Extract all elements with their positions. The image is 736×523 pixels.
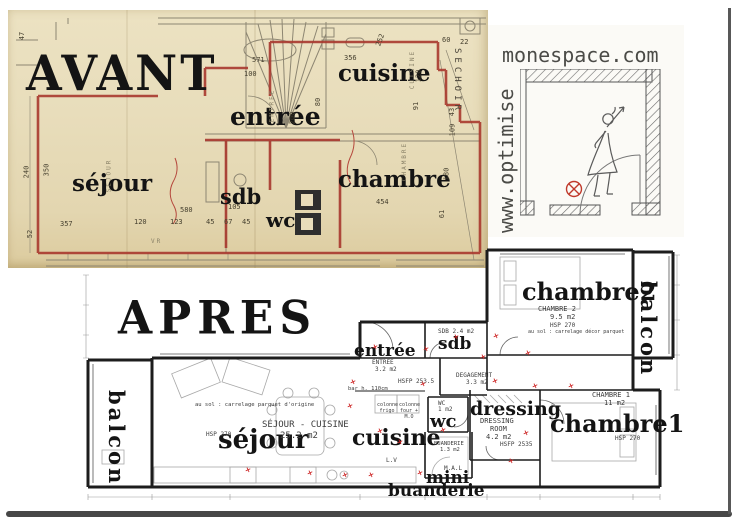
- old-room-entree: entrée: [230, 102, 321, 131]
- chambre1-area: 11 m2: [604, 399, 625, 407]
- new-room-balcon-left: balcon: [104, 390, 129, 486]
- image-right-shadow: [728, 8, 731, 514]
- logo-vertical-text: www.optimise: [494, 89, 518, 234]
- before-after-floorplan-image: AVANT entrée cuisine séjour sdb wc chamb…: [0, 0, 736, 523]
- old-room-sdb: sdb: [220, 184, 261, 209]
- hsfp-degagement: HSFP 253.5: [398, 378, 434, 385]
- sejour-cuisine-caption: SÉJOUR - CUISINE: [262, 420, 349, 430]
- chambre2-area: 9.5 m2: [550, 313, 575, 321]
- old-room-wc: wc: [266, 208, 295, 232]
- girl-silhouette-icon: [588, 107, 624, 196]
- degagement-area: 3.3 m2: [466, 379, 488, 386]
- wc-fixtures: [295, 190, 321, 235]
- logo-domain-text: monespace.com: [502, 43, 659, 67]
- logo-room-figure: [520, 69, 664, 229]
- degagement-caption: DEGAGEMENT: [456, 372, 492, 379]
- chambre1-hsp: HSP 270: [615, 435, 640, 442]
- old-room-sejour: séjour: [72, 170, 152, 197]
- chambre2-floor-note: au sol : carrelage décor parquet: [528, 329, 624, 335]
- chambre1-caption: CHAMBRE 1: [592, 391, 630, 399]
- avant-plan: AVANT entrée cuisine séjour sdb wc chamb…: [8, 10, 488, 268]
- logo-block: monespace.com www.optimise: [488, 25, 684, 237]
- colonne-four-caption: colonne four + M.O: [399, 402, 419, 420]
- new-room-cuisine: cuisine: [352, 425, 440, 451]
- dressing-room-caption: ROOM: [490, 425, 507, 433]
- avant-title: AVANT: [26, 45, 217, 102]
- apres-plan: APRES balcon balcon séjour SÉJOUR - CUIS…: [80, 245, 730, 515]
- new-room-chambre1: chambre1: [550, 409, 684, 438]
- bar-caption: bar h. 110cm: [348, 386, 388, 392]
- sejour-hsp: HSP 270: [206, 431, 231, 438]
- entree-caption: ENTREE: [372, 359, 394, 366]
- sejour-area: 25.2 m2: [280, 431, 318, 441]
- entree-area: 3.2 m2: [375, 366, 397, 373]
- old-room-chambre: chambre: [338, 166, 451, 193]
- colonne-frigo-caption: colonne frigo: [377, 402, 397, 414]
- hsfp-dressing: HSFP 2535: [500, 441, 533, 448]
- new-room-entree: entrée: [354, 341, 416, 361]
- lv-caption: L.V: [386, 457, 397, 464]
- chambre2-caption: CHAMBRE 2: [538, 305, 576, 313]
- new-room-buanderie: buanderie: [388, 481, 485, 501]
- image-bottom-shadow: [6, 511, 732, 517]
- light-point-icon: [567, 182, 582, 197]
- new-room-chambre2: chambre2: [522, 277, 656, 306]
- logo-room-walls: [520, 69, 660, 215]
- new-room-sdb: sdb: [438, 334, 471, 354]
- apres-title: APRES: [118, 292, 317, 346]
- buanderie-area: 1.3 m2: [440, 447, 460, 453]
- dressing-area: 4.2 m2: [486, 433, 511, 441]
- old-room-sechoir: SECHOIR: [452, 48, 462, 114]
- red-annotations: [170, 130, 354, 224]
- dressing-caption: DRESSING: [480, 417, 514, 425]
- sejour-floor-note: au sol : carrelage parquet d'origine: [195, 402, 314, 408]
- old-room-cuisine: cuisine: [338, 60, 431, 87]
- chambre2-hsp: HSP 270: [550, 322, 575, 329]
